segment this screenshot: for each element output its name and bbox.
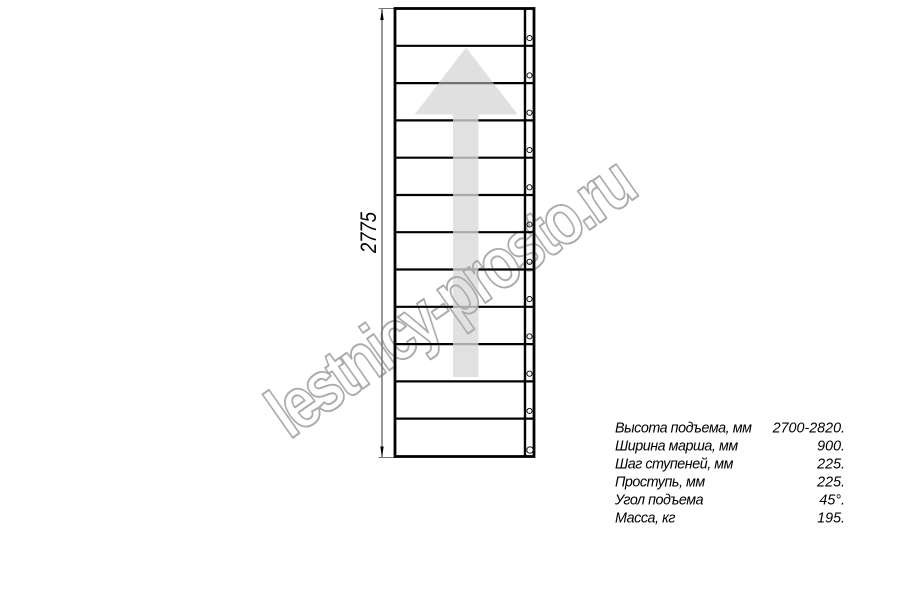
svg-text:225.: 225.	[816, 457, 845, 473]
svg-text:2775: 2775	[356, 211, 381, 253]
svg-text:225.: 225.	[816, 475, 845, 491]
svg-text:Масса, кг: Масса, кг	[615, 511, 675, 527]
svg-text:2700-2820.: 2700-2820.	[772, 421, 845, 437]
svg-text:Шаг ступеней, мм: Шаг ступеней, мм	[615, 457, 734, 473]
svg-text:900.: 900.	[817, 439, 845, 455]
svg-text:45°.: 45°.	[819, 493, 845, 509]
svg-text:Ширина марша, мм: Ширина марша, мм	[615, 439, 738, 455]
svg-text:Угол подъема: Угол подъема	[614, 493, 704, 509]
svg-text:Проступь, мм: Проступь, мм	[615, 475, 705, 491]
svg-text:Высота подъема, мм: Высота подъема, мм	[615, 421, 752, 437]
svg-text:195.: 195.	[817, 511, 845, 527]
